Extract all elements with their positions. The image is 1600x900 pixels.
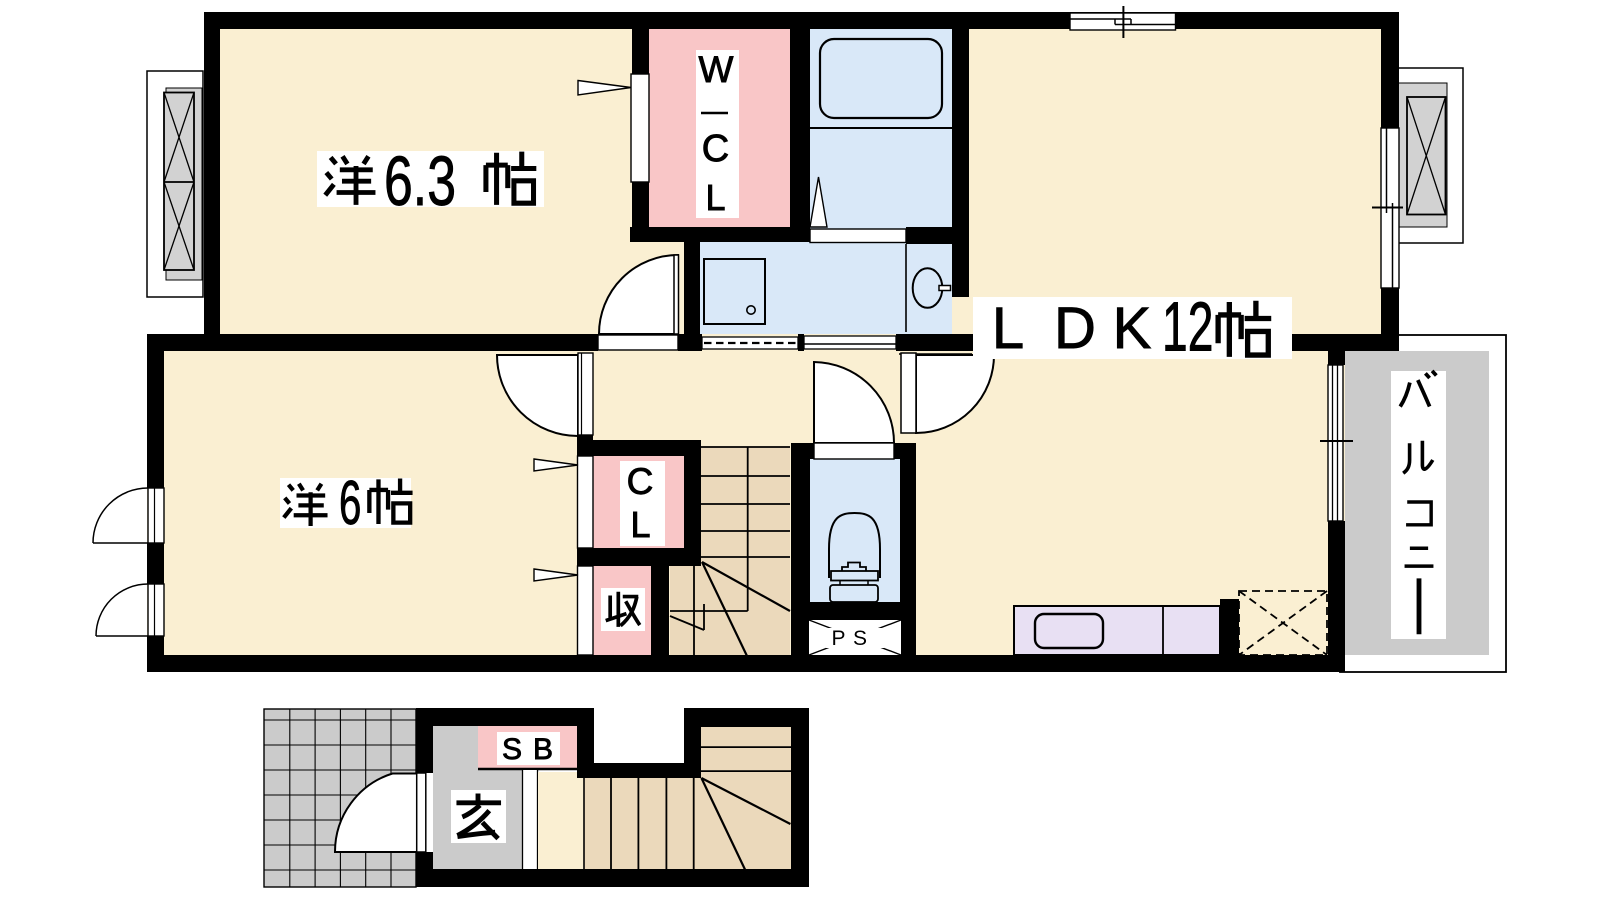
svg-text:6.3: 6.3	[384, 142, 456, 220]
svg-text:C: C	[702, 128, 729, 170]
svg-text:S: S	[502, 733, 522, 766]
svg-text:B: B	[533, 733, 553, 766]
svg-text:L: L	[992, 296, 1024, 361]
svg-text:P: P	[831, 627, 845, 650]
svg-text:D: D	[1054, 296, 1096, 361]
svg-text:L: L	[705, 177, 725, 218]
svg-text:C: C	[627, 461, 654, 502]
svg-text:W: W	[699, 49, 734, 90]
svg-text:12: 12	[1162, 287, 1213, 366]
svg-text:6: 6	[339, 469, 361, 538]
svg-text:K: K	[1113, 296, 1152, 361]
svg-text:S: S	[853, 627, 867, 650]
svg-text:L: L	[630, 504, 650, 545]
